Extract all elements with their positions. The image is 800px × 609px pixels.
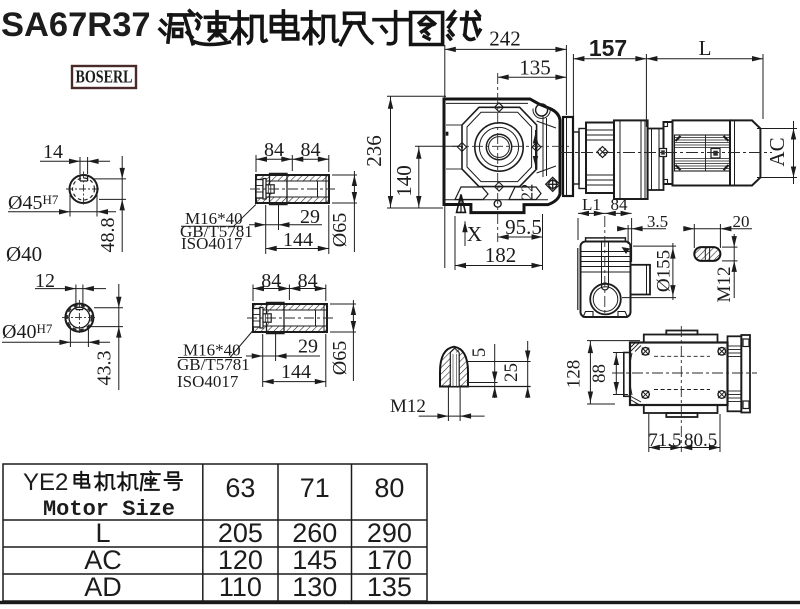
svg-text:95.5: 95.5 [505, 215, 542, 239]
svg-text:135: 135 [367, 572, 412, 602]
svg-text:110: 110 [219, 572, 262, 602]
svg-text:71.5: 71.5 [648, 430, 681, 451]
svg-text:AC: AC [765, 137, 789, 166]
svg-text:84: 84 [264, 139, 284, 161]
svg-text:20: 20 [733, 212, 750, 231]
svg-text:X: X [467, 222, 482, 246]
svg-text:AD: AD [84, 572, 122, 602]
svg-text:157: 157 [589, 35, 627, 61]
svg-text:140: 140 [392, 165, 416, 197]
svg-text:ISO4017: ISO4017 [181, 234, 243, 253]
svg-text:14: 14 [43, 141, 63, 163]
svg-text:135: 135 [519, 56, 551, 80]
svg-text:88: 88 [589, 364, 610, 383]
svg-text:43.3: 43.3 [94, 351, 116, 386]
svg-text:Ø65: Ø65 [329, 341, 351, 375]
svg-text:Ø65: Ø65 [329, 213, 351, 247]
svg-text:M12: M12 [714, 267, 735, 303]
svg-text:84: 84 [261, 270, 281, 292]
svg-text:260: 260 [292, 518, 337, 548]
svg-text:120: 120 [218, 545, 263, 575]
svg-text:Ø155: Ø155 [654, 250, 675, 292]
svg-text:25: 25 [501, 363, 522, 382]
svg-text:BOSERL: BOSERL [76, 67, 133, 87]
svg-text:48.8: 48.8 [97, 218, 119, 253]
svg-text:12: 12 [35, 270, 55, 292]
svg-text:145: 145 [292, 545, 337, 575]
svg-text:L1: L1 [582, 195, 601, 214]
svg-text:29: 29 [300, 206, 320, 228]
svg-text:Ø40: Ø40 [6, 242, 42, 266]
svg-text:84: 84 [301, 139, 321, 161]
svg-text:80: 80 [374, 473, 404, 503]
svg-text:128: 128 [564, 360, 585, 389]
svg-text:84: 84 [298, 270, 318, 292]
svg-text:242: 242 [489, 27, 521, 51]
svg-text:144: 144 [283, 229, 313, 251]
svg-text:29: 29 [298, 336, 318, 358]
svg-text:3.5: 3.5 [647, 212, 668, 231]
svg-text:AC: AC [84, 545, 122, 575]
svg-text:ISO4017: ISO4017 [177, 372, 239, 391]
svg-text:84: 84 [611, 195, 629, 214]
svg-text:290: 290 [367, 518, 412, 548]
svg-text:205: 205 [218, 518, 263, 548]
svg-text:22: 22 [518, 184, 537, 201]
svg-text:236: 236 [362, 135, 386, 167]
svg-text:63: 63 [225, 473, 255, 503]
svg-text:L: L [699, 36, 712, 60]
svg-text:71: 71 [300, 473, 330, 503]
svg-text:5: 5 [469, 348, 490, 358]
svg-text:130: 130 [292, 572, 337, 602]
svg-text:SA67R37: SA67R37 [1, 6, 151, 44]
svg-text:80.5: 80.5 [684, 430, 717, 451]
svg-text:L: L [95, 518, 110, 548]
svg-text:144: 144 [281, 361, 311, 383]
svg-text:170: 170 [367, 545, 412, 575]
svg-text:YE2: YE2 [23, 469, 68, 496]
svg-text:182: 182 [485, 243, 517, 267]
svg-text:M12: M12 [390, 396, 426, 417]
